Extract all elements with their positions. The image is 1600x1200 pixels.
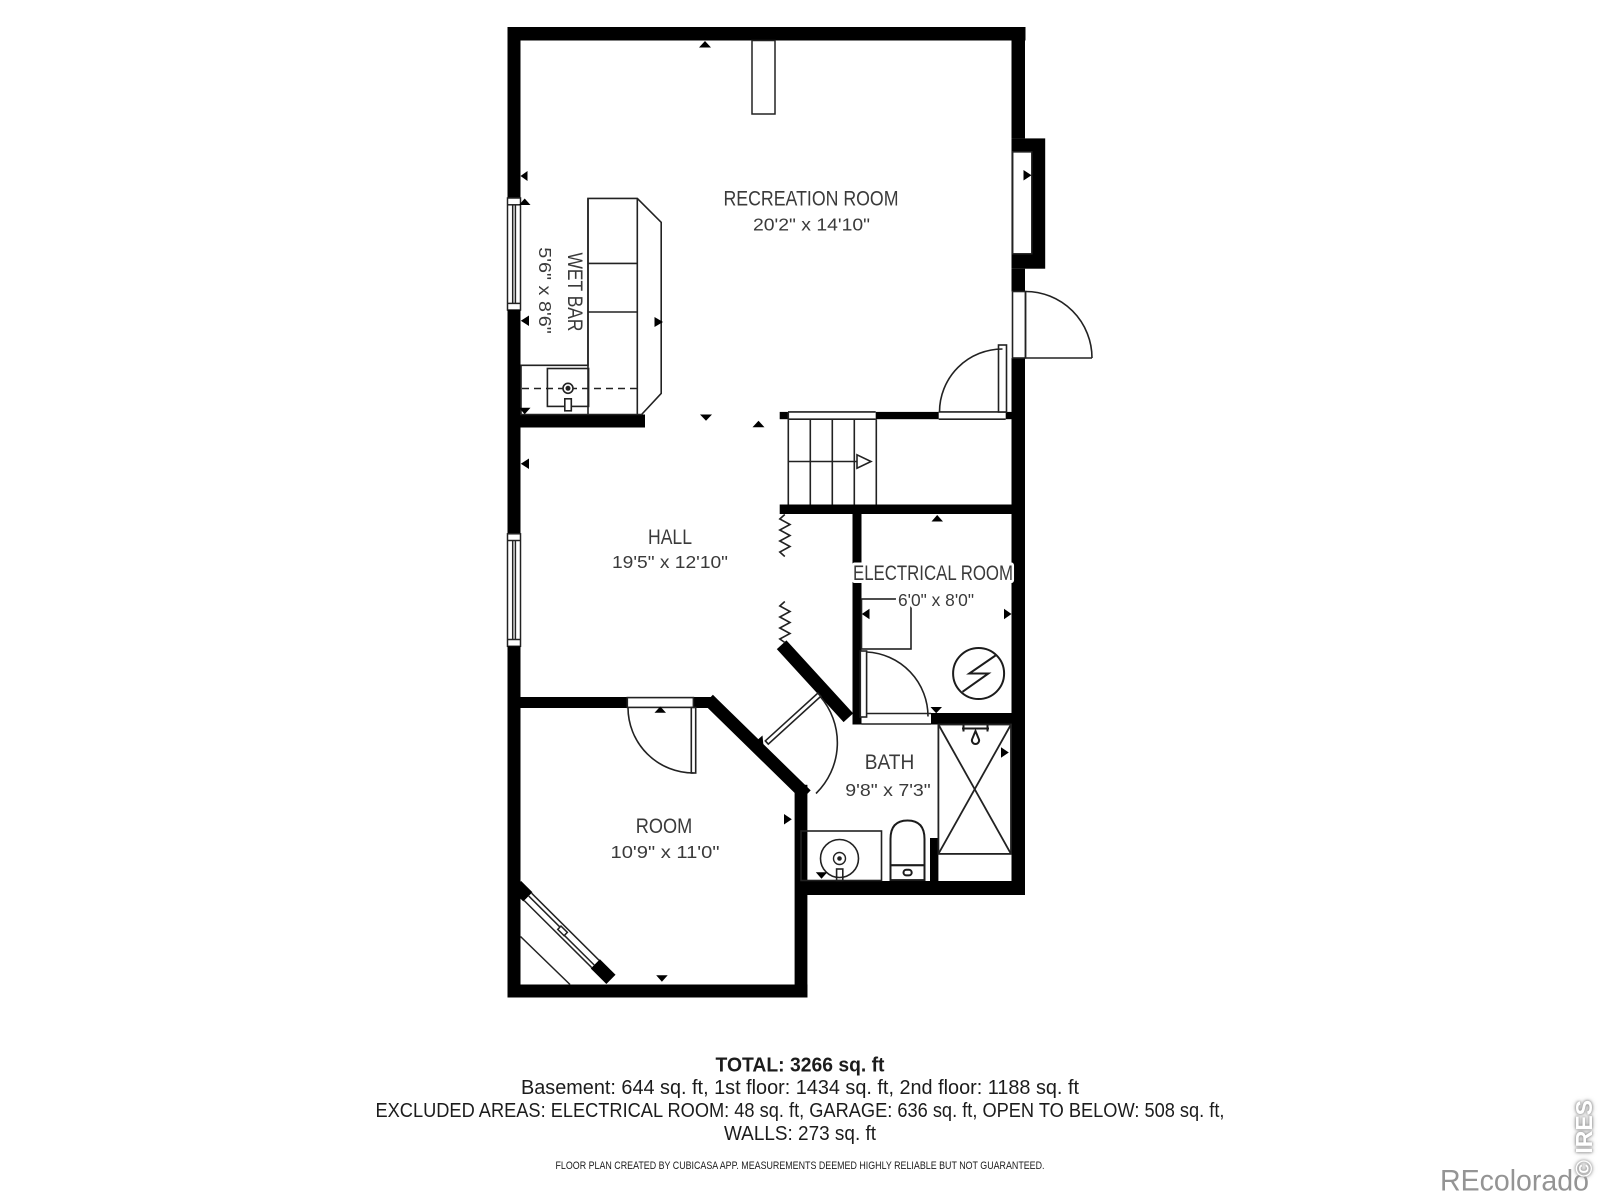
svg-text:5'6" x 8'6": 5'6" x 8'6" bbox=[535, 247, 555, 334]
svg-text:WET BAR: WET BAR bbox=[563, 253, 586, 332]
svg-text:19'5" x 12'10": 19'5" x 12'10" bbox=[612, 552, 728, 572]
svg-text:HALL: HALL bbox=[648, 526, 692, 549]
svg-text:EXCLUDED AREAS: ELECTRICAL ROO: EXCLUDED AREAS: ELECTRICAL ROOM: 48 sq. … bbox=[376, 1100, 1225, 1122]
svg-text:FLOOR PLAN CREATED BY CUBICASA: FLOOR PLAN CREATED BY CUBICASA APP. MEAS… bbox=[556, 1160, 1045, 1172]
svg-text:9'8" x 7'3": 9'8" x 7'3" bbox=[845, 780, 931, 800]
svg-text:BATH: BATH bbox=[865, 751, 915, 774]
svg-text:20'2" x 14'10": 20'2" x 14'10" bbox=[753, 215, 870, 235]
svg-text:10'9" x 11'0": 10'9" x 11'0" bbox=[611, 842, 720, 862]
svg-text:Basement: 644 sq. ft, 1st floo: Basement: 644 sq. ft, 1st floor: 1434 sq… bbox=[521, 1077, 1079, 1099]
svg-text:© IRES: © IRES bbox=[1571, 1100, 1597, 1177]
svg-text:ROOM: ROOM bbox=[636, 815, 693, 838]
svg-text:TOTAL: 3266 sq. ft: TOTAL: 3266 sq. ft bbox=[716, 1055, 885, 1077]
svg-text:WALLS: 273 sq. ft: WALLS: 273 sq. ft bbox=[724, 1123, 876, 1145]
svg-text:RECREATION ROOM: RECREATION ROOM bbox=[724, 188, 899, 211]
svg-text:6'0" x 8'0": 6'0" x 8'0" bbox=[898, 590, 974, 610]
svg-text:ELECTRICAL ROOM: ELECTRICAL ROOM bbox=[853, 562, 1013, 585]
svg-text:REcolorado: REcolorado bbox=[1440, 1165, 1589, 1198]
